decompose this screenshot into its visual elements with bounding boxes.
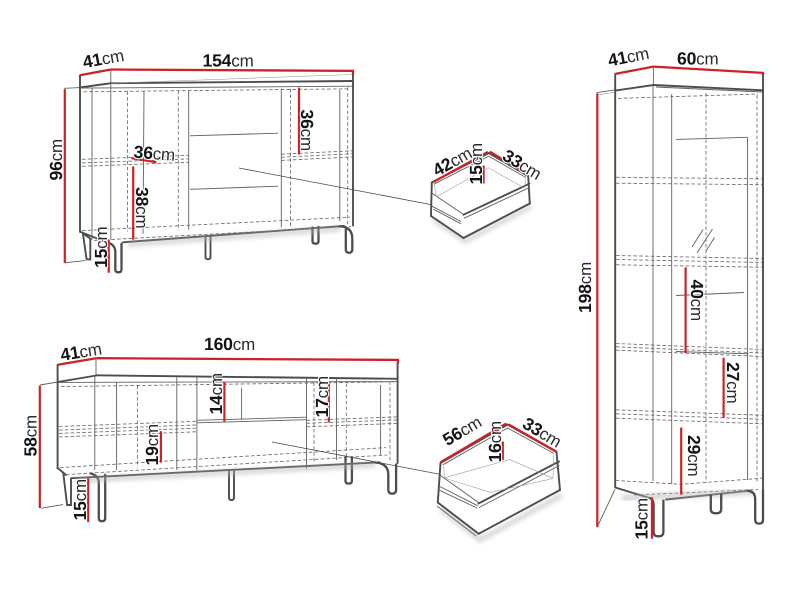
- svg-text:36cm: 36cm: [297, 110, 317, 151]
- svg-text:29cm: 29cm: [684, 435, 704, 476]
- svg-text:16cm: 16cm: [485, 421, 505, 462]
- svg-text:36cm: 36cm: [133, 142, 176, 165]
- svg-text:38cm: 38cm: [132, 187, 152, 228]
- svg-text:14cm: 14cm: [206, 373, 226, 414]
- svg-text:19cm: 19cm: [142, 424, 162, 465]
- svg-text:198cm: 198cm: [575, 262, 595, 313]
- svg-text:58cm: 58cm: [21, 415, 41, 456]
- svg-text:27cm: 27cm: [723, 362, 743, 403]
- svg-text:15cm: 15cm: [70, 479, 90, 520]
- svg-text:60cm: 60cm: [677, 49, 718, 69]
- svg-text:15cm: 15cm: [632, 498, 652, 539]
- svg-text:15cm: 15cm: [466, 143, 486, 184]
- svg-text:160cm: 160cm: [204, 334, 255, 354]
- svg-text:40cm: 40cm: [687, 280, 707, 321]
- svg-text:154cm: 154cm: [203, 50, 254, 70]
- svg-text:96cm: 96cm: [46, 139, 66, 180]
- svg-text:17cm: 17cm: [312, 376, 332, 417]
- svg-text:15cm: 15cm: [91, 227, 111, 268]
